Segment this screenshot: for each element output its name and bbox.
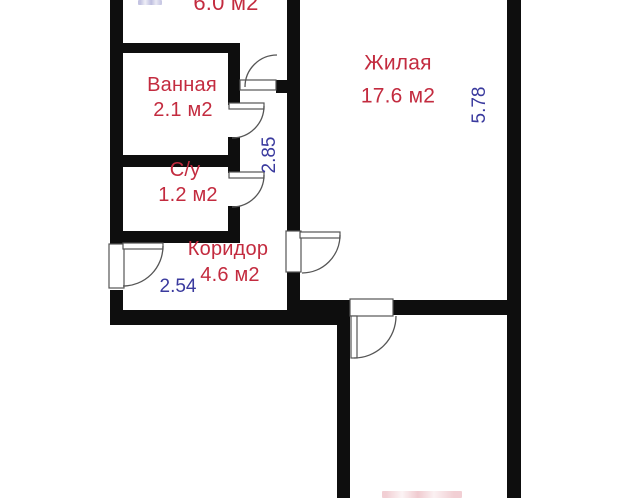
bathroom-door-arc: [232, 106, 264, 138]
entrance-door-leaf: [123, 243, 163, 249]
wall-hall-door-cap: [276, 80, 287, 93]
bottomroom-door-leaf: [351, 316, 357, 358]
clipped-label-artifact: [382, 491, 462, 498]
living-area-label: 17.6 м2: [361, 84, 435, 107]
wall-bathroom-right-upper: [228, 43, 240, 105]
living-height-dimension: 5.78: [469, 87, 491, 124]
entrance-door-arc: [123, 246, 163, 286]
wall-right-outer: [507, 0, 521, 498]
living-door-leaf: [300, 232, 340, 238]
bottomroom-door-arc: [354, 316, 396, 358]
living-door-arc: [302, 235, 340, 273]
entrance-door-jamb: [109, 244, 124, 288]
clipped-dimension-artifact: [138, 0, 162, 5]
wall-bottomroom-left: [337, 300, 350, 498]
bathroom-door-leaf: [229, 103, 264, 109]
toilet-door-arc: [232, 175, 264, 207]
wall-toproom-bottom: [110, 43, 240, 53]
living-name-label: Жилая: [364, 51, 431, 74]
corridor-name-label: Коридор: [188, 238, 268, 260]
hall-height-dimension: 2.85: [259, 137, 281, 174]
toproom-area-label: 6.0 м2: [193, 0, 258, 15]
corridor-area-label: 4.6 м2: [200, 264, 259, 286]
floorplan-drawing: [0, 0, 640, 498]
bathroom-name-label: Ванная: [147, 74, 217, 96]
wall-living-left-top: [287, 0, 300, 232]
bottomroom-door-jamb: [350, 299, 393, 316]
living-door-jamb: [286, 231, 301, 272]
floorplan-canvas: 6.0 м2 Ванная 2.1 м2 С/у 1.2 м2 Коридор …: [0, 0, 640, 498]
bathroom-area-label: 2.1 м2: [153, 99, 212, 121]
toilet-name-label: С/у: [170, 159, 201, 181]
wall-left-outer-top: [110, 0, 123, 245]
corridor-width-dimension: 2.54: [160, 276, 197, 298]
wall-living-bottom-right: [393, 300, 520, 315]
toilet-area-label: 1.2 м2: [158, 184, 217, 206]
